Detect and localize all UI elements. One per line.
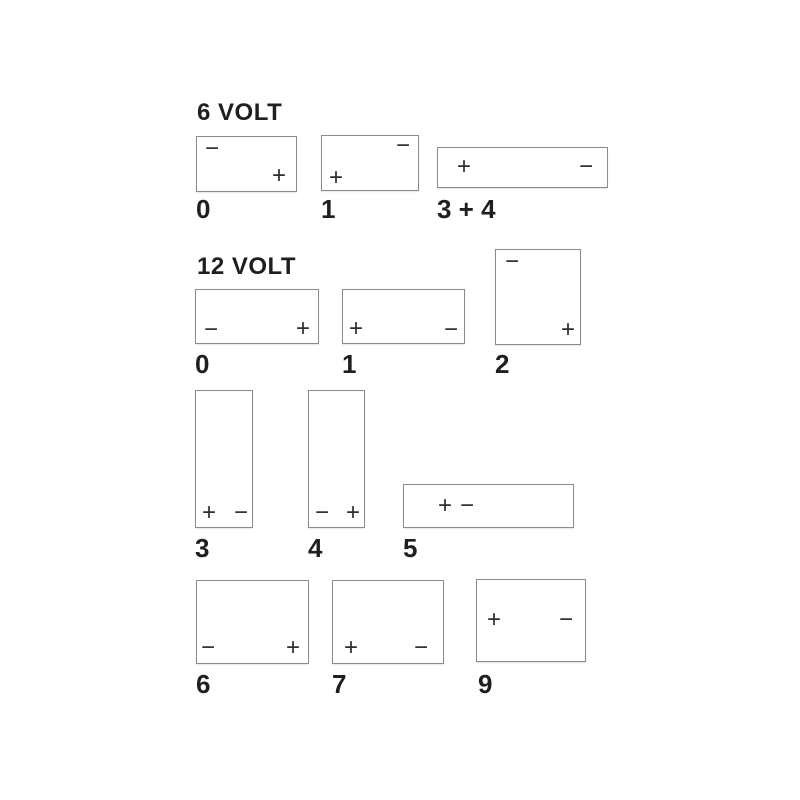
plus-terminal-icon: + [561,318,575,342]
plus-terminal-icon: + [296,317,310,341]
battery-code-label: 7 [332,671,346,697]
battery-code-label: 9 [478,671,492,697]
plus-terminal-icon: + [272,164,286,188]
minus-terminal-icon: − [460,494,474,518]
battery-code-label: 4 [308,535,322,561]
minus-terminal-icon: − [315,501,329,525]
plus-terminal-icon: + [286,636,300,660]
plus-terminal-icon: + [487,608,501,632]
plus-terminal-icon: + [346,501,360,525]
minus-terminal-icon: − [201,636,215,660]
battery-box-12-volt-5: +− [403,484,574,528]
minus-terminal-icon: − [234,501,248,525]
battery-box-6-volt-0: −+ [196,136,297,192]
battery-code-label: 3 [195,535,209,561]
battery-terminal-layout-diagram: 6 VOLT−+0−+1+−3 + 412 VOLT−+0+−1−+2+−3−+… [0,0,800,800]
minus-terminal-icon: − [205,137,219,161]
battery-code-label: 6 [196,671,210,697]
section-heading-6-volt: 6 VOLT [197,101,282,125]
section-heading-12-volt: 12 VOLT [197,255,296,279]
battery-box-12-volt-7: +− [332,580,444,664]
plus-terminal-icon: + [457,155,471,179]
battery-box-12-volt-2: −+ [495,249,581,345]
minus-terminal-icon: − [579,155,593,179]
battery-box-12-volt-4: −+ [308,390,365,528]
battery-code-label: 0 [195,351,209,377]
battery-box-12-volt-6: −+ [196,580,309,664]
plus-terminal-icon: + [438,494,452,518]
minus-terminal-icon: − [204,318,218,342]
plus-terminal-icon: + [329,166,343,190]
minus-terminal-icon: − [505,250,519,274]
minus-terminal-icon: − [414,636,428,660]
battery-code-label: 5 [403,535,417,561]
plus-terminal-icon: + [344,636,358,660]
plus-terminal-icon: + [349,317,363,341]
battery-code-label: 1 [321,196,335,222]
minus-terminal-icon: − [559,608,573,632]
battery-box-12-volt-1: +− [342,289,465,344]
battery-box-12-volt-9: +− [476,579,586,662]
minus-terminal-icon: − [396,134,410,158]
battery-box-6-volt-3+4: +− [437,147,608,188]
battery-box-12-volt-3: +− [195,390,253,528]
plus-terminal-icon: + [202,501,216,525]
battery-code-label: 0 [196,196,210,222]
battery-code-label: 2 [495,351,509,377]
battery-code-label: 1 [342,351,356,377]
battery-box-6-volt-1: −+ [321,135,419,191]
minus-terminal-icon: − [444,318,458,342]
battery-box-12-volt-0: −+ [195,289,319,344]
battery-code-label: 3 + 4 [437,196,496,222]
